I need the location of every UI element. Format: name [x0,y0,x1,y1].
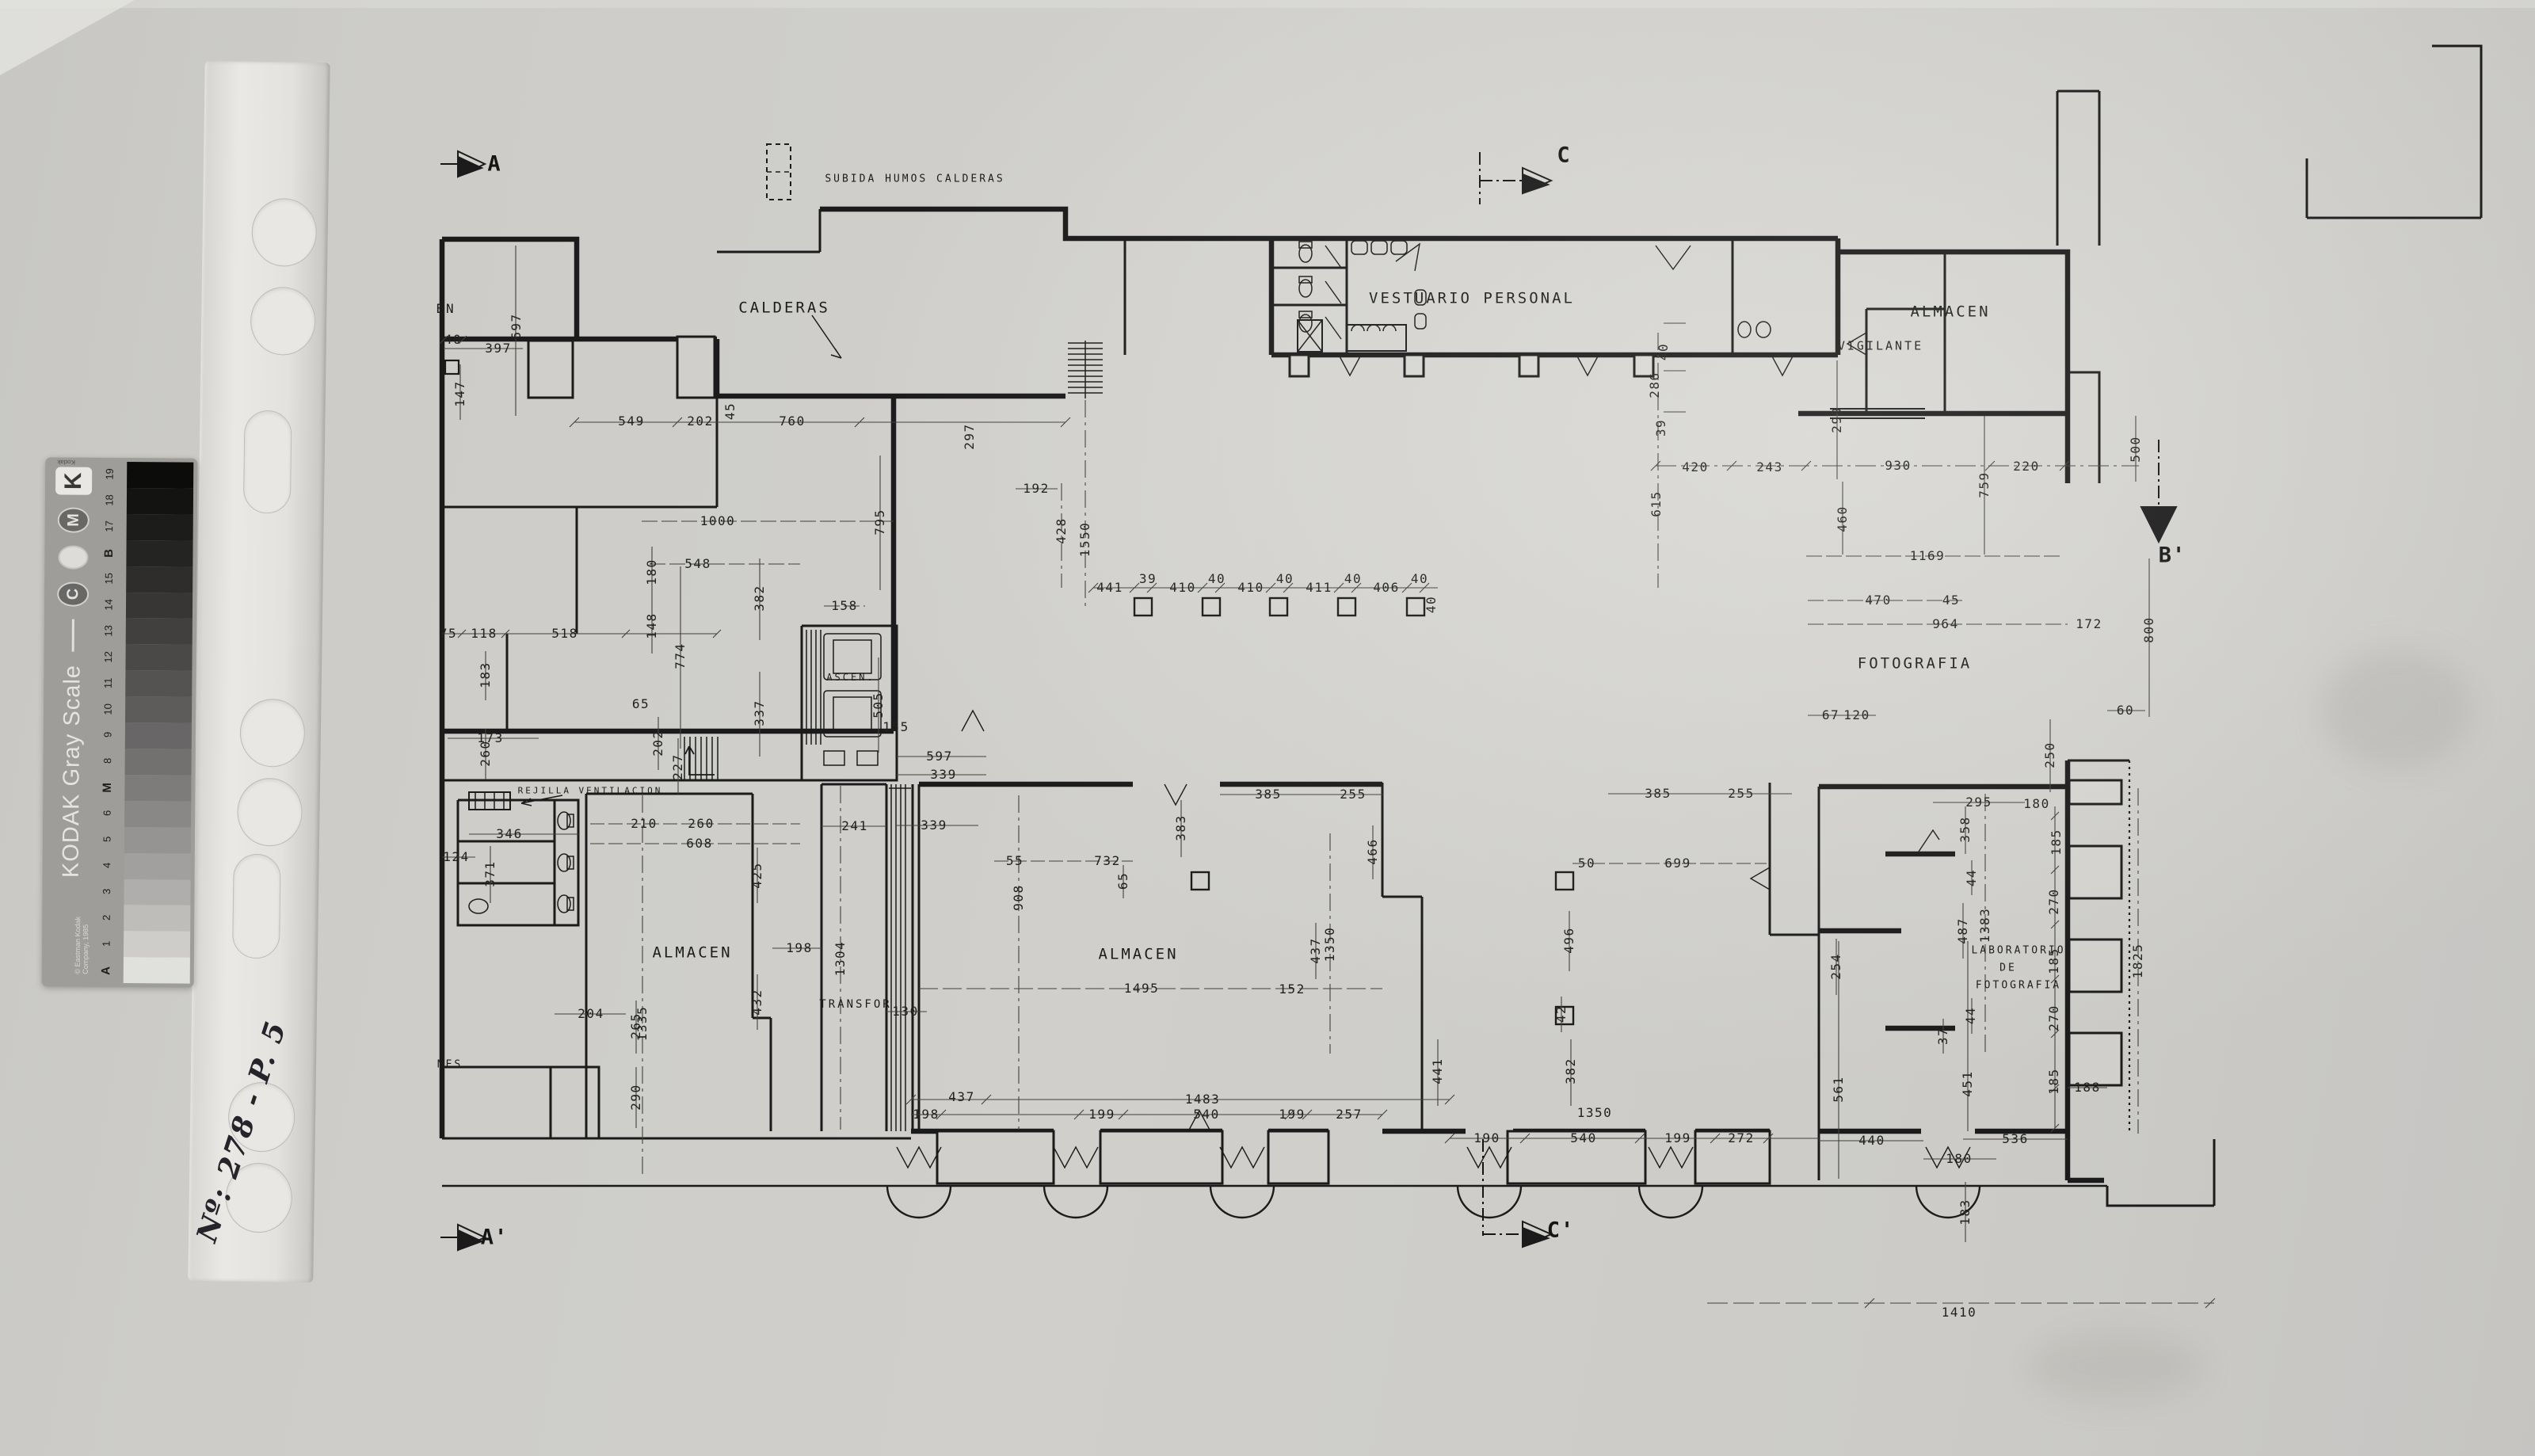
dimension-label: 44 [1965,869,1978,886]
room-label: NES [437,1060,463,1070]
gray-step-label: 6 [101,799,113,826]
dimension-label: 420 [1682,461,1708,474]
dimension-label: 759 [1978,471,1991,497]
dimension-label: 505 [872,692,885,718]
gray-step-label: 15 [103,565,115,592]
dimension-label: 255 [1340,788,1366,801]
section-marker-label: A' [481,1225,509,1250]
dimension-label: 250 [2044,741,2057,768]
dimension-label: 1410 [1942,1306,1977,1319]
section-marker-label: A [487,152,501,177]
dimension-label: 383 [1175,814,1187,840]
gray-step-label: A [99,957,112,984]
facade-bays [442,1186,2107,1218]
room-label: SUBIDA HUMOS CALDERAS [825,174,1004,185]
dimension-label: 339 [921,819,947,832]
dimension-label: 40 [1276,573,1294,585]
gray-step [125,670,192,696]
dimension-label: 441 [1431,1058,1444,1084]
dimension-label: 337 [753,699,766,726]
dimension-label: 75 [440,627,457,640]
dimension-label: 1350 [1577,1107,1613,1119]
punch-hole [237,778,303,847]
dimension-label: 1350 [1324,927,1336,962]
dimension-label: 40 [1208,573,1226,585]
dimension-label: 192 [1023,482,1049,495]
dimension-label: 428 [1055,517,1068,543]
room-label: TRANSFOR [819,999,891,1010]
dimension-label: 548 [684,558,711,570]
gray-step [124,775,191,801]
gray-step-label: 11 [102,669,114,696]
gray-step-label: 4 [101,852,112,879]
gray-step [126,566,193,593]
card-logo-dot [58,545,88,569]
dimension-label: 241 [841,820,867,833]
gray-step [124,853,191,879]
dimension-label: 697 [510,313,523,339]
dimension-label: 65 [632,698,650,711]
dimension-label: 1169 [1910,550,1946,562]
dimension-label: 371 [484,860,497,886]
dimension-label: 358 [1959,816,1972,842]
punch-slot [243,410,292,514]
gray-step [124,905,190,931]
gray-step-label: 2 [101,904,112,931]
dimension-label: 397 [485,342,511,355]
dimension-label: 227 [672,753,684,779]
dimension-label: 199 [1664,1132,1691,1145]
gray-step-labels: 191817B15141312111098M654321A [93,462,124,983]
dimension-label: 1483 [1185,1093,1221,1106]
gray-step [125,722,192,749]
dimension-label: 50 [1578,857,1595,870]
dimension-label: 65 [1117,872,1130,890]
dimension-label: 437 [1309,937,1322,963]
gray-step-label: 1 [100,930,112,957]
dimension-label: 460 [1836,505,1849,532]
dimension-label: 188 [2074,1081,2100,1094]
room-label: EN [436,303,456,315]
dimension-label: 42 [1555,1005,1568,1023]
dimension-label: 40 [1425,596,1438,613]
gray-step-label: 13 [102,617,114,644]
dimension-label: 185 [2048,1068,2060,1094]
dimension-label: 147 [454,380,467,406]
room-label: FOTOGRAFIA [1976,981,2061,991]
kodak-gray-scale-card: 191817B15141312111098M654321A © Eastman … [42,457,198,987]
dimension-label: 158 [831,600,857,612]
dimension-label: 243 [1756,461,1782,474]
dimension-label: 37 [1937,1027,1950,1045]
gray-step [127,514,193,540]
kodak-k-glyph: K [60,472,87,490]
dimension-label: 1383 [1979,908,1992,943]
gray-step [127,462,193,488]
dimension-label: 286 [1649,372,1661,398]
door-marks [897,244,1970,1168]
dimension-label: 800 [2143,616,2156,642]
dimension-label: 964 [1932,618,1958,631]
dimension-label: 148 [646,612,658,638]
dimension-label: 411 [1306,581,1332,594]
dimension-label: 45 [1942,594,1960,607]
dimension-label: 210 [631,818,657,830]
dimension-label: 40 [1657,343,1670,360]
gray-step [126,540,193,566]
floor-plan-drawing [0,0,2535,1456]
scanned-photo: 4039769714754920245760297192428155040286… [0,0,2535,1456]
dimension-label: 540 [1570,1132,1596,1145]
columns [445,337,2121,1183]
dimension-label: 1495 [1124,982,1160,995]
dimension-label: 795 [874,509,886,535]
dimension-label: 265 [630,1012,642,1039]
dimension-label: 270 [2048,1004,2060,1031]
dimension-label: 540 [1193,1108,1219,1121]
dimension-label: 172 [2076,618,2102,631]
room-label: LABORATORIO [1971,946,2065,956]
dimension-label: 406 [1373,581,1399,594]
dimension-label: 760 [779,415,805,428]
dimension-label: 496 [1563,927,1576,953]
room-label: CALDERAS [738,301,830,316]
dimension-label: 180 [2023,798,2049,810]
card-divider [71,619,74,652]
gray-step [124,801,191,827]
dimension-label: 120 [1843,709,1870,722]
dimension-label: 385 [1645,787,1671,800]
dimension-label: 198 [913,1108,939,1121]
dimension-label: 183 [479,661,492,688]
dimension-label: 40 [444,334,462,346]
dimension-label: 1000 [700,515,736,528]
dimension-label: 299 [1831,406,1843,433]
room-label: ASCEN. [826,673,875,682]
dimension-label: 466 [1367,838,1379,864]
dimension-label: 257 [1336,1108,1362,1121]
dimension-label: 124 [443,851,469,863]
dimension-label: 199 [1088,1108,1115,1121]
dimension-label: 615 [1650,490,1663,516]
dimension-label: 549 [618,415,644,428]
dimension-label: 185 [2050,829,2063,855]
gray-step [124,957,190,983]
card-logo-m: M [58,508,90,533]
dimension-label: 425 [751,862,764,888]
dimension-label: 297 [963,423,976,449]
gray-step-label: 5 [101,825,112,852]
room-label: DE [1999,963,2017,974]
gray-step-label: 18 [103,487,115,514]
dimension-label: 198 [786,942,812,955]
card-copyright: © Eastman Kodak Company, 1985 [74,890,90,974]
dimension-label: 1550 [1079,522,1092,558]
room-label: VESTUARIO PERSONAL [1369,292,1575,307]
punch-hole [251,198,317,267]
dimension-label: 410 [1169,581,1195,594]
gray-step-label: M [101,775,114,802]
card-title: KODAK Gray Scale [58,665,86,878]
gray-step [125,696,192,722]
dimension-label: 295 [1965,796,1992,809]
dimension-label: 155 [882,721,909,734]
dimension-label: 183 [1959,1199,1972,1225]
dimension-label: 260 [688,818,714,830]
dimension-label: 60 [2117,704,2134,717]
gray-step [125,644,192,670]
dimension-label: 908 [1012,884,1025,910]
dimension-label: 608 [686,837,712,850]
gray-step-label: 17 [103,513,115,540]
dimension-label: 441 [1096,581,1123,594]
dimension-label: 930 [1885,459,1911,472]
dimension-label: 152 [1279,983,1305,996]
dimension-label: 500 [2129,436,2142,462]
dimension-label: 487 [1957,917,1969,943]
dimension-label: 40 [1411,573,1428,585]
gray-step [126,593,193,619]
section-marker-label: C [1557,143,1570,168]
room-label: ALMACEN [652,946,732,961]
dimension-label: 561 [1832,1076,1845,1102]
gray-step [125,749,192,775]
dimension-label: 130 [892,1005,918,1018]
gray-step-label: 19 [104,461,116,488]
dimension-label: 1304 [834,941,847,977]
dimension-label: 1825 [2132,943,2144,979]
gray-step-label: 9 [101,722,113,749]
punch-slot [232,854,281,959]
dimension-label: 199 [1279,1108,1305,1121]
dimension-label: 190 [1473,1132,1500,1145]
dimension-label: 272 [1728,1132,1754,1145]
dimension-label: 39 [1139,573,1157,585]
dimension-label: 699 [1664,857,1691,870]
dimension-label: 44 [1965,1007,1977,1024]
dimension-label: 339 [930,768,956,781]
dimension-label: 597 [926,750,952,763]
dimension-label: 40 [1344,573,1362,585]
dimension-label: 39 [1655,419,1668,436]
dimension-label: 382 [1565,1058,1577,1084]
dimension-label: 410 [1237,581,1264,594]
gray-step [124,827,191,853]
dimension-label: 270 [2048,888,2060,914]
dimension-label: 180 [646,558,658,585]
room-label: FOTOGRAFIA [1858,657,1972,672]
dimension-label: 55 [1006,855,1024,867]
dimension-label: 204 [578,1008,604,1020]
room-label: ALMACEN [1910,305,1990,320]
dimension-label: 220 [2013,460,2039,473]
dimension-label: 732 [1094,855,1120,867]
gray-step-label: 8 [101,748,113,775]
dimension-label: 432 [751,989,764,1015]
interior-walls [442,46,2481,1206]
gray-step-label: B [102,539,116,566]
dimension-label: 45 [724,402,737,420]
gray-step-label: 14 [102,591,114,618]
dimension-label: 180 [1946,1153,1972,1165]
gray-step-wedge [124,462,194,984]
room-label: REJILLA VENTILACION [518,787,663,795]
kodak-logo: K Kodak [55,467,92,494]
dimension-label: 67 [1822,709,1839,722]
section-marker-label: C' [1547,1218,1575,1243]
dimension-label: 774 [674,642,687,669]
kodak-brand-name: Kodak [57,458,75,465]
gray-step [126,618,193,644]
dimension-label: 290 [630,1084,642,1110]
dimension-label: 118 [471,627,497,640]
gray-step [127,488,193,514]
gray-step-label: 12 [102,643,114,670]
dimension-label: 518 [551,627,578,640]
gray-step-label: 10 [102,696,114,722]
dimension-label: 202 [652,730,665,756]
gray-step [124,879,190,905]
dimension-label: 440 [1858,1134,1885,1147]
dimension-label: 437 [948,1091,974,1103]
gray-step-label: 3 [101,878,112,905]
card-logo-c: C [57,581,89,607]
punch-hole [250,287,316,356]
room-label: ALMACEN [1098,947,1178,962]
punch-hole [239,699,305,768]
room-label: VIGILANTE [1838,341,1923,353]
dimension-label: 260 [479,740,492,766]
dimension-label: 470 [1865,594,1891,607]
dimension-label: 346 [496,828,522,840]
dimension-label: 202 [687,415,713,428]
dimension-label: 385 [1255,788,1281,801]
dimension-label: 451 [1961,1070,1974,1096]
card-text: © Eastman Kodak Company, 1985 KODAK Gray… [48,467,96,974]
dimension-label: 382 [753,585,766,611]
dimension-label: 254 [1830,953,1843,979]
dimension-label: 255 [1728,787,1754,800]
gray-step [124,931,190,957]
dimension-label: 536 [2002,1133,2028,1145]
section-marker-label: B' [2159,543,2186,568]
